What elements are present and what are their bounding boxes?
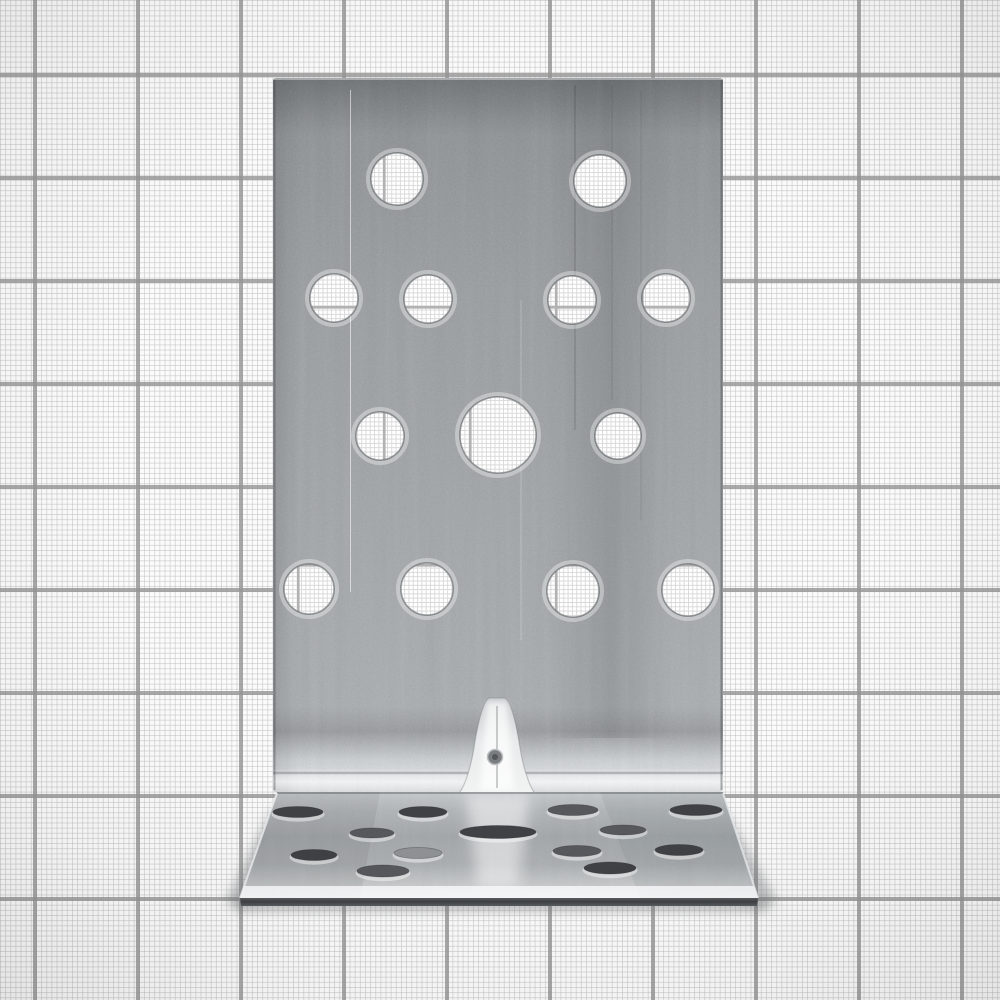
base-slot-1 xyxy=(273,807,323,818)
angle-bracket-illustration xyxy=(0,0,1000,1000)
base-slot-2 xyxy=(399,807,447,818)
plate-left-shading xyxy=(273,78,299,792)
base-slot-11 xyxy=(655,845,703,856)
base-slot-9 xyxy=(394,848,442,859)
base-slot-3 xyxy=(548,805,598,816)
base-slot-12 xyxy=(357,865,409,877)
base-slot-13 xyxy=(584,862,636,874)
base-front-face xyxy=(240,898,758,906)
base-slot-7 xyxy=(600,825,646,835)
rib-dimple-center xyxy=(492,754,498,760)
base-slot-8 xyxy=(291,850,337,861)
product-photo xyxy=(0,0,1000,1000)
base-slot-4 xyxy=(670,805,722,816)
base-slot-6 xyxy=(460,826,536,839)
base-slot-5 xyxy=(350,828,394,838)
base-front-highlight xyxy=(240,886,758,898)
base-slot-10 xyxy=(553,846,601,857)
